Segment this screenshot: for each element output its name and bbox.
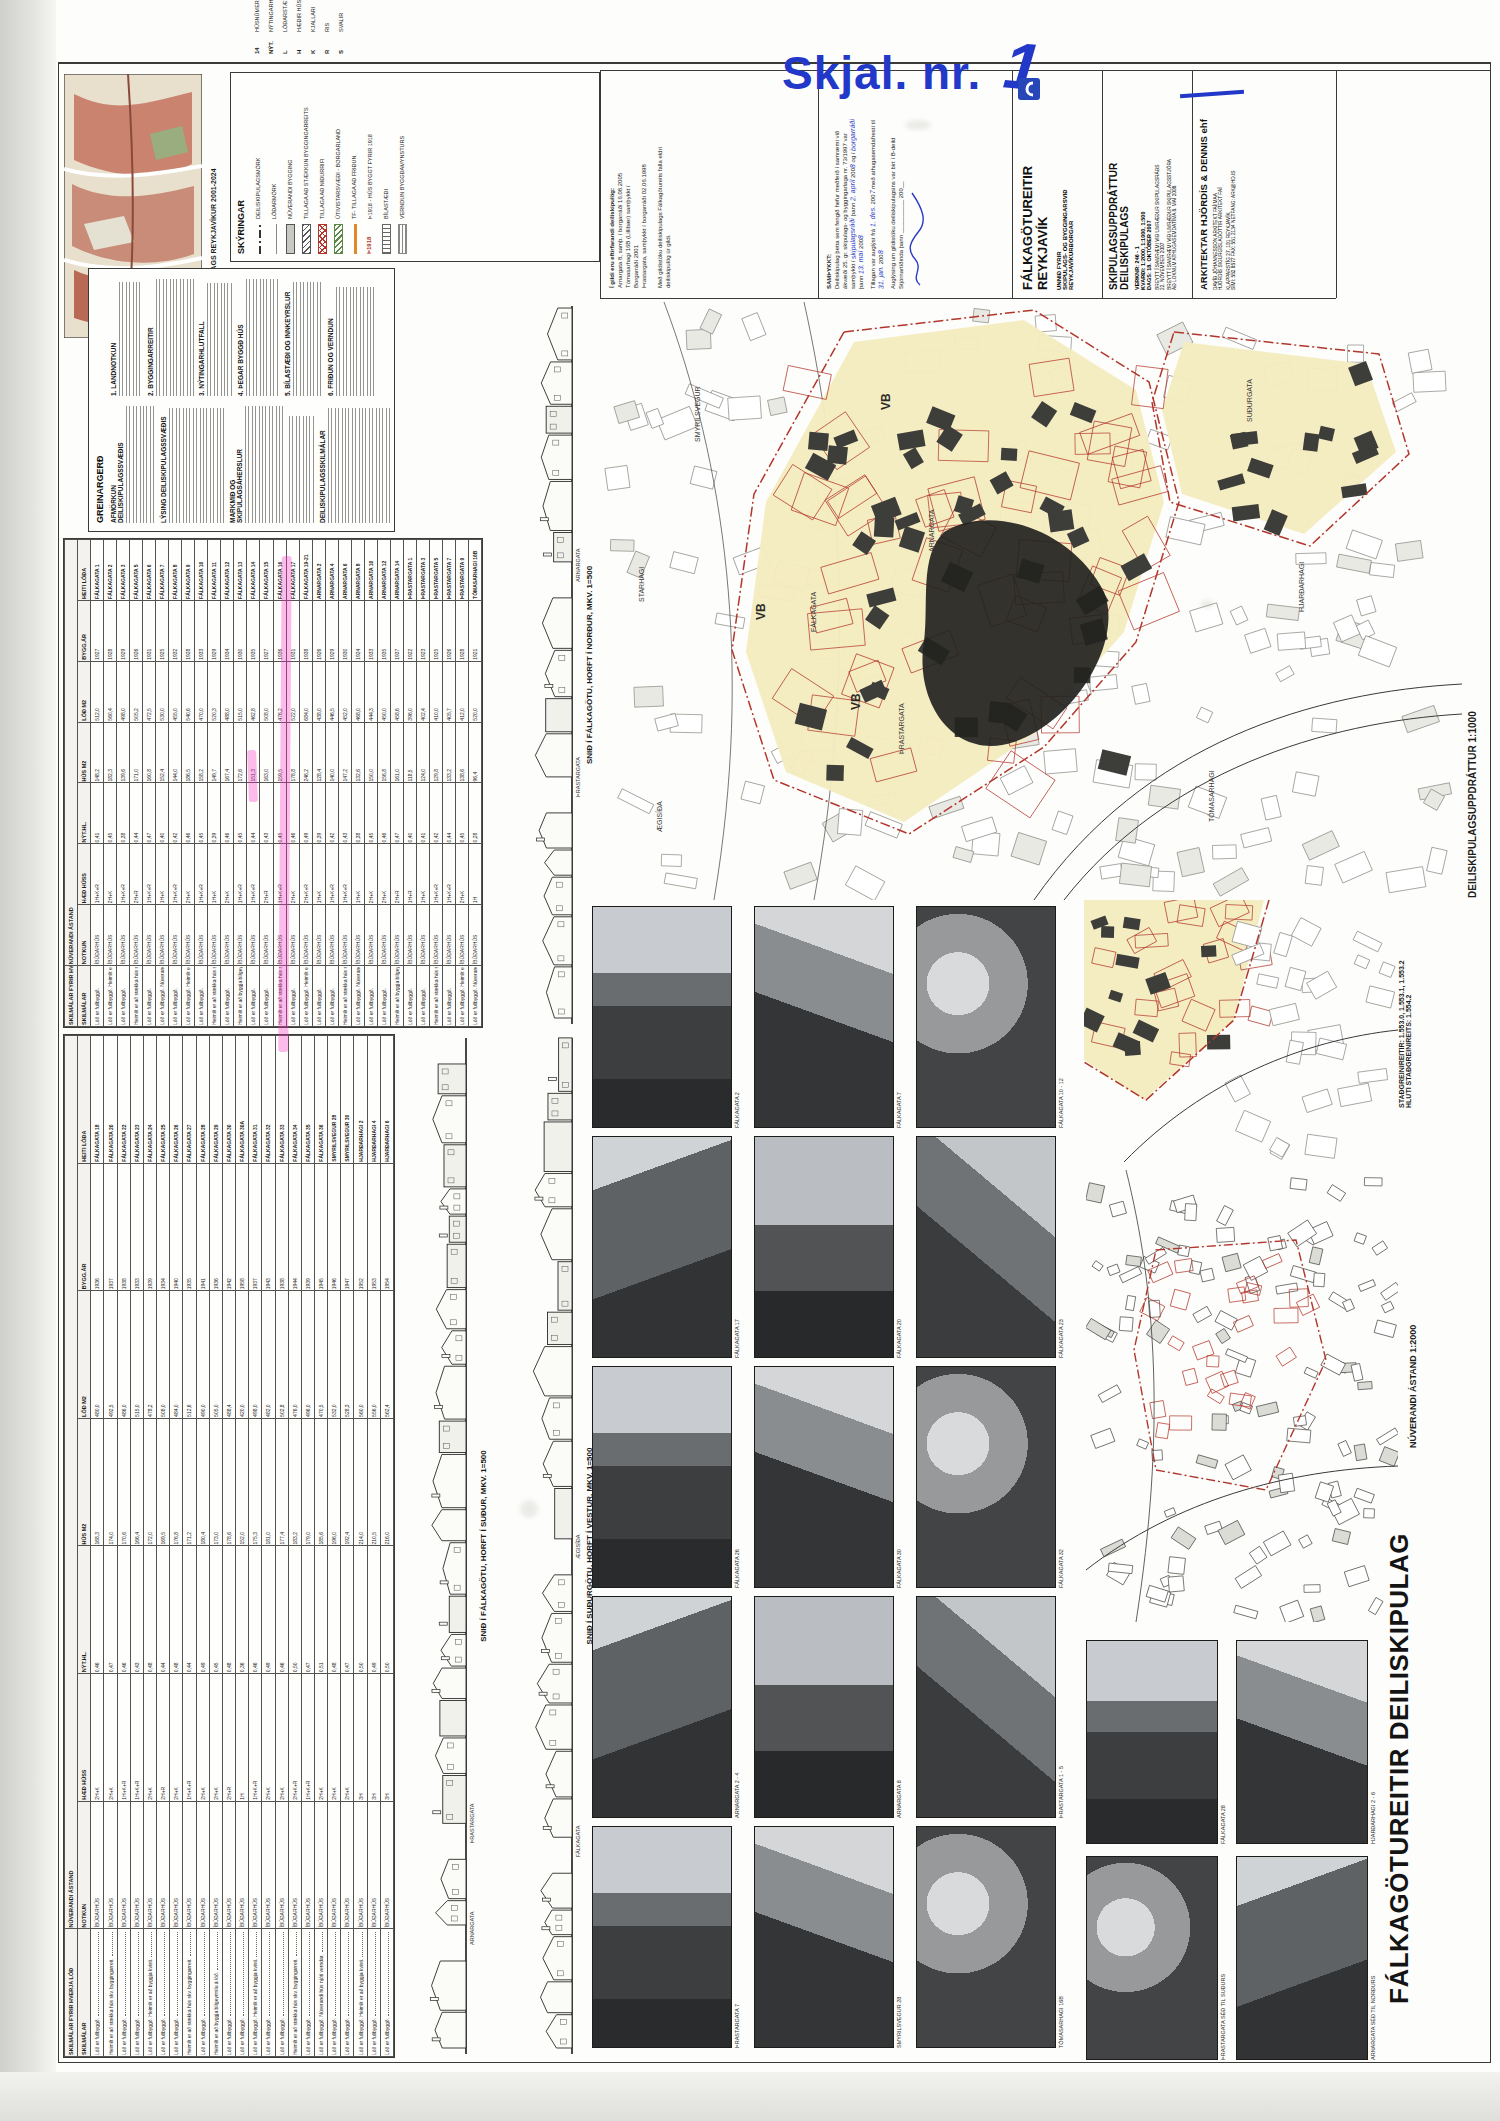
table-row: Lóð er fullbyggð. Heimilt er að byggja k… (354, 1036, 367, 2057)
cell-year: 1945 (314, 1163, 327, 1291)
cell-year: 1926 (442, 600, 455, 661)
cell-terms: Heimilt er að stækka hús skv. byggingarr… (183, 1929, 196, 2057)
legend-item-label: LÓÐARMÖRK (271, 184, 277, 219)
cell-ratio: 0,44 (157, 1546, 170, 1674)
cell-house-m2: 196,0 (328, 1418, 341, 1546)
table-column-header: SKILMÁLAR (78, 966, 91, 1027)
site-photo (1236, 1856, 1368, 2060)
legend-key-symbol: S (338, 32, 344, 54)
cell-terms: Lóð er fullbyggð. (117, 966, 130, 1027)
cell-ratio: 0,28 (468, 783, 481, 844)
cell-house-m2: 246,2 (299, 722, 312, 783)
cell-height: 2H+R (130, 844, 143, 905)
cell-use: ÍBÚÐARHÚS (442, 905, 455, 966)
cell-house-m2: 161,0 (390, 722, 403, 783)
cell-lot-m2: 450,0 (377, 661, 390, 722)
cell-use: ÍBÚÐARHÚS (390, 905, 403, 966)
cell-house-m2: 149,7 (208, 722, 221, 783)
table-row: Lóð er fullbyggð.ÍBÚÐARHÚS1H+K+R0,45158,… (195, 540, 208, 1027)
cell-terms: Lóð er fullbyggð. (367, 1929, 380, 2057)
table-column-header: SKILMÁLAR (78, 1929, 91, 2057)
cell-ratio: 0,44 (442, 783, 455, 844)
table-row: Heimilt er að stækka hús skv. byggingarr… (208, 540, 221, 1027)
photo-caption: FÁLKAGATA 2 (734, 906, 740, 1128)
cell-house-m2: 156,8 (377, 722, 390, 783)
legend-item-label: TILLAGA AÐ STÆKKUN BYGGINGARREITS (303, 107, 309, 219)
table-row: Lóð er fullbyggð.ÍBÚÐARHÚS1H+K+R0,43166,… (130, 1036, 143, 2057)
cell-house-m2: 175,3 (249, 1418, 262, 1546)
cell-terms: Lóð er fullbyggð. (143, 966, 156, 1027)
site-photo (592, 906, 732, 1128)
cell-lot-name: FÁLKAGATA 34 (288, 1036, 301, 1164)
cell-year: 1938 (275, 1163, 288, 1291)
cell-terms: Lóð er fullbyggð. (196, 1929, 209, 2057)
cell-ratio: 0,43 (130, 1546, 143, 1674)
table-group-existing: NÚVERANDI ÁSTAND (65, 1036, 78, 1929)
table-row: Lóð er fullbyggð.ÍBÚÐARHÚS1H+K0,41124,04… (416, 540, 429, 1027)
titlestrip-divider (1336, 70, 1337, 298)
validity-note: Með gildistöku deiliskipulags Fálkagötur… (656, 138, 672, 288)
cell-house-m2: 140,0 (325, 722, 338, 783)
cell-lot-m2: 532,0 (328, 1291, 341, 1419)
handwritten-year: 8 (857, 235, 865, 239)
cell-lot-name: SMYRILSVEGUR 28 (328, 1036, 341, 1164)
table-row: Lóð er fullbyggð. Heimilt er að byggja k… (143, 1036, 156, 2057)
cell-year: 1928 (455, 600, 468, 661)
cell-ratio: 0,49 (262, 1546, 275, 1674)
photo-caption: FÁLKAGATA 26 (734, 1366, 740, 1588)
cell-lot-name: HJARÐARHAGI 6 (380, 1036, 393, 1164)
cell-ratio: 0,50 (354, 1546, 367, 1674)
cell-terms: Lóð er fullbyggð. (260, 966, 273, 1027)
cell-terms: Lóð er fullbyggð. Heimilt er að byggja k… (299, 966, 312, 1027)
cell-use: ÍBÚÐARHÚS (468, 905, 481, 966)
cell-ratio: 0,49 (299, 783, 312, 844)
cell-lot-name: FÁLKAGATA 6 (143, 540, 156, 601)
legend-item: TILLAGA AÐ STÆKKUN BYGGINGARREITS (298, 54, 314, 254)
legend-key-item: SSVALIR (334, 0, 348, 54)
cell-height: 1H+K (208, 844, 221, 905)
cell-house-m2: 180,4 (196, 1418, 209, 1546)
table-column-header: HÆÐ HÚSS (78, 1674, 91, 1802)
cell-height: 2H+K (209, 1674, 222, 1802)
stadgrein-line: HLUTI STAÐGREINIREITS: 1.554.2 (1405, 900, 1412, 1108)
cell-use: ÍBÚÐARHÚS (196, 1801, 209, 1929)
cell-height: 2H+R (157, 1674, 170, 1802)
cell-lot-m2: 512,6 (183, 1291, 196, 1419)
table-row: Lóð er fullbyggð.ÍBÚÐARHÚS1H+K+R0,42140,… (325, 540, 338, 1027)
cell-lot-m2: 528,3 (341, 1291, 354, 1419)
cell-ratio: 0,46 (275, 1546, 288, 1674)
cell-year: 1929 (325, 600, 338, 661)
cell-lot-m2: 560,4 (104, 661, 117, 722)
cell-terms: Heimilt er að stækka hús skv. byggingarr… (288, 1929, 301, 2057)
cell-ratio: 0,44 (130, 783, 143, 844)
cell-lot-m2: 530,0 (156, 661, 169, 722)
cell-house-m2: 210,5 (367, 1418, 380, 1546)
section-drawing: FÁLKAGATAÆGISÍÐASNIÐ Í SUÐURGÖTU, HORFT … (500, 1034, 598, 2058)
cell-terms: Lóð er fullbyggð. (377, 966, 390, 1027)
cell-ratio: 0,43 (338, 783, 351, 844)
cell-year: 1934 (221, 600, 234, 661)
cell-ratio: 0,46 (249, 1546, 262, 1674)
cell-use: ÍBÚÐARHÚS (130, 1801, 143, 1929)
cell-ratio: 0,46 (221, 783, 234, 844)
cell-terms: Lóð er fullbyggð. (221, 966, 234, 1027)
legend-item-label: NÚVERANDI BYGGING (287, 159, 293, 219)
cell-terms: Lóð er fullbyggð. Heimilt er að byggja k… (182, 966, 195, 1027)
handwritten-year: 8 (877, 250, 885, 254)
cell-terms: Lóð er fullbyggð. Núverandi hús njóti ve… (314, 1929, 327, 2057)
legend-item-label: TILLAGA AÐ NIÐURRIFI (319, 158, 325, 219)
cell-height: 2H+K (182, 844, 195, 905)
cell-height: 1H+K+R (234, 844, 247, 905)
cell-lot-m2: 410,0 (429, 661, 442, 722)
cell-lot-m2: 444,3 (364, 661, 377, 722)
cell-ratio: 0,39 (208, 783, 221, 844)
legend-key-label: RIS (324, 23, 330, 32)
table-column-header: LÓÐ M2 (78, 1291, 91, 1419)
approval-text: með athugasemdafresti til (870, 120, 876, 189)
handwritten-year: 8 (849, 164, 857, 168)
cell-ratio: 0,46 (377, 783, 390, 844)
crosshatch-swatch-icon (318, 224, 327, 254)
report-box: GREINARGERÐ AFMÖRKUN DEILISKIPULAGSSVÆÐI… (88, 268, 395, 532)
cell-use: ÍBÚÐARHÚS (351, 905, 364, 966)
table-row: Lóð er fullbyggð.ÍBÚÐARHÚS2H+K0,48176,84… (170, 1036, 183, 2057)
svg-text:ARNARGATA: ARNARGATA (469, 1911, 475, 1945)
cell-lot-m2: 508,0 (260, 661, 273, 722)
approval-text: 200__ (898, 182, 904, 199)
cell-lot-name: FÁLKAGATA 24 (143, 1036, 156, 1164)
cell-year: 1928 (182, 600, 195, 661)
cell-use: ÍBÚÐARHÚS (117, 1801, 130, 1929)
legend-key-item: RRIS (320, 0, 334, 54)
approval-text: og í (850, 152, 856, 162)
cell-ratio: 0,46 (182, 783, 195, 844)
photo-caption: FÁLKAGATA 20 (896, 1136, 902, 1358)
table-column-header: NOTKUN (78, 1801, 91, 1929)
handwritten-date: 2. apríl (849, 180, 858, 202)
sheet-date: DAGS: 18. OKTÓBER 2007 (1146, 78, 1152, 290)
table-row: Lóð er fullbyggð. Heimilt er að byggja k… (104, 540, 117, 1027)
table-row: Lóð er fullbyggð. Heimilt er að byggja k… (249, 1036, 262, 2057)
architects-line: HJÖRDÍS SIGURGÍSLADÓTTIR ARKITEKT FAÍ (1218, 78, 1223, 290)
cell-house-m2: 133,2 (442, 722, 455, 783)
cell-use: ÍBÚÐARHÚS (91, 1801, 104, 1929)
site-photo (1236, 1640, 1368, 1844)
cell-lot-name: TÓMASARHAGI 16B (468, 540, 481, 601)
table-row: Heimilt er að stækka hús skv. byggingarr… (429, 540, 442, 1027)
cell-year: 1929 (117, 600, 130, 661)
approval-text: 200 (858, 239, 864, 249)
cell-house-m2: 171,0 (130, 722, 143, 783)
cell-lot-name: ÞRASTARGATA 3 (416, 540, 429, 601)
cell-lot-m2: 420,0 (236, 1291, 249, 1419)
report-paragraph-lines (156, 279, 194, 396)
cell-ratio: 0,45 (455, 783, 468, 844)
cell-ratio: 0,47 (341, 1546, 354, 1674)
section-elevation-west: FÁLKAGATAÆGISÍÐASNIÐ Í SUÐURGÖTU, HORFT … (500, 1034, 598, 2058)
cell-use: ÍBÚÐARHÚS (288, 1801, 301, 1929)
cell-height: 1H+R (403, 844, 416, 905)
site-photo (754, 1596, 894, 1818)
approval-text: þann (858, 276, 864, 289)
main-plan-map: VBVBVBFÁLKAGATAARNARGATAÞRASTARGATASMYRI… (604, 302, 1462, 900)
cell-lot-m2: 684,0 (299, 661, 312, 722)
cell-terms: Lóð er fullbyggð. Heimilt er að byggja k… (143, 1929, 156, 2057)
cell-lot-name: ARNARGATA 4 (325, 540, 338, 601)
stadgreinireitir-label: STAÐGREINIREITIR: 1.553.0, 1.553.1, 1.55… (1398, 900, 1434, 1108)
site-photo (1086, 1856, 1218, 2060)
cell-height: 1H+K+R (117, 1674, 130, 1802)
legend-item: Þ1918Þ1918 - HÚS BYGGT FYRIR 1918 (362, 54, 378, 254)
cell-use: ÍBÚÐARHÚS (209, 1801, 222, 1929)
cell-house-m2: 216,0 (380, 1418, 393, 1546)
cell-lot-name: ARNARGATA 14 (390, 540, 403, 601)
cell-house-m2: 144,0 (169, 722, 182, 783)
site-photo (754, 1826, 894, 2048)
cell-lot-m2: 405,7 (442, 661, 455, 722)
report-heading: 6. FRIÐUN OG VERNDUN (327, 277, 334, 396)
cell-use: ÍBÚÐARHÚS (367, 1801, 380, 1929)
table-group-existing: NÚVERANDI ÁSTAND (65, 540, 78, 966)
photo-caption: TÓMASARHAGI 16B (1058, 1826, 1064, 2048)
photo-grid-right: FÁLKAGATA 28HJARÐARHAGI 2 - 6ÞRASTARGATA… (1086, 1640, 1382, 2060)
photo-caption: ÞRASTARGATA SÉÐ TIL SUÐURS (1220, 1856, 1226, 2060)
cell-year: 1938 (117, 1163, 130, 1291)
vb-zone-label: VB (849, 693, 863, 710)
cell-year: 1930 (338, 600, 351, 661)
cell-height: 1H+K+R (117, 844, 130, 905)
photo-caption: FÁLKAGATA 17 (734, 1136, 740, 1358)
cell-lot-name: FÁLKAGATA 14 (247, 540, 260, 601)
cell-house-m2: 172,0 (143, 1418, 156, 1546)
cell-lot-name: FÁLKAGATA 35 (301, 1036, 314, 1164)
cell-use: ÍBÚÐARHÚS (195, 905, 208, 966)
signature-squiggle (908, 179, 926, 289)
cell-house-m2: 169,5 (157, 1418, 170, 1546)
grayfill-swatch-icon (286, 224, 295, 254)
legend-item: ÚTIVISTARSVÆÐI - BORGARLAND (330, 54, 346, 254)
report-heading: 4. ÞEGAR BYGGÐ HÚS (237, 277, 244, 396)
street-name-label: STARHAGI (638, 567, 645, 602)
cell-year: 1944 (288, 1163, 301, 1291)
street-name-label: SUÐURGATA (1246, 379, 1253, 422)
hatch-swatch-icon (302, 224, 311, 254)
table-row: Lóð er fullbyggð.ÍBÚÐARHÚS2H+K0,46177,45… (275, 1036, 288, 2057)
report-paragraph-lines (246, 279, 280, 396)
cell-lot-name: FÁLKAGATA 33 (275, 1036, 288, 1164)
table-column-header: BYGG.ÁR (78, 1163, 91, 1291)
architects-name: ARKITEKTAR HJÖRDÍS & DENNIS ehf (1198, 78, 1209, 290)
photo-caption: FÁLKAGATA 28 (1220, 1640, 1226, 1844)
scanned-plan-sheet: Skjal. nr. 1 Í gildi eru eftirfarandi de… (0, 0, 1500, 2121)
sheet-main-title-text: FÁLKAGÖTUREITIR DEILISKIPULAG (1384, 1533, 1414, 2004)
cell-lot-m2: 484,0 (170, 1291, 183, 1419)
cell-year: 1937 (249, 1163, 262, 1291)
cell-terms: Lóð er fullbyggð. (301, 1929, 314, 2057)
cell-height: 2H+K (377, 844, 390, 905)
legend-heading: SKÝRINGAR (236, 54, 246, 254)
street-name-label: HJARÐARHAGI (1298, 562, 1305, 612)
legend-item-label: BÍLASTÆÐI (383, 189, 389, 219)
cell-height: 1H+K+R (91, 844, 104, 905)
site-photo (916, 1826, 1056, 2048)
cell-lot-m2: 502,8 (275, 1291, 288, 1419)
photo-caption: FÁLKAGATA 23 (1058, 1136, 1064, 1358)
existing-state-label-text: NÚVERANDI ÁSTAND 1:2000 (1408, 1325, 1418, 1448)
cell-ratio: 0,40 (156, 783, 169, 844)
photo-caption: FÁLKAGATA 7 (896, 906, 902, 1128)
report-heading: 2. BYGGINGARREITIR (147, 277, 154, 396)
legend-key-label: NÝTINGARHLUTFALL (268, 0, 274, 32)
cell-lot-name: ÞRASTARGATA 5 (429, 540, 442, 601)
cell-terms: Lóð er fullbyggð. (91, 966, 104, 1027)
cell-year: 1923 (416, 600, 429, 661)
cell-year: 1934 (157, 1163, 170, 1291)
cell-house-m2: 160,8 (143, 722, 156, 783)
cell-lot-name: FÁLKAGATA 13 (234, 540, 247, 601)
stadgrein-line: STAÐGREINIREITIR: 1.553.0, 1.553.1, 1.55… (1398, 900, 1405, 1108)
table-row: Lóð er fullbyggð.ÍBÚÐARHÚS1H+K+R0,44133,… (442, 540, 455, 1027)
approval-box: SAMÞYKKT: Deiliskipulag þetta sem fengið… (820, 72, 1010, 296)
table-column-header: NÝT.HL. (78, 783, 91, 844)
cell-height: 3H (354, 1674, 367, 1802)
firm-logo (1018, 78, 1040, 100)
cell-height: 2H+R (390, 844, 403, 905)
photo-caption: FÁLKAGATA 32 (1058, 1366, 1064, 1588)
cell-house-m2: 171,2 (183, 1418, 196, 1546)
cell-year: 1939 (143, 1163, 156, 1291)
cell-use: ÍBÚÐARHÚS (364, 905, 377, 966)
site-photo (1086, 1640, 1218, 1844)
cell-height: 1H+K+R (195, 844, 208, 905)
cell-lot-m2: 470,0 (195, 661, 208, 722)
cell-house-m2: 174,0 (104, 1418, 117, 1546)
cell-year: 1937 (390, 600, 403, 661)
cell-height: 2H+K (328, 1674, 341, 1802)
cell-lot-m2: 455,0 (169, 661, 182, 722)
cell-height: 1H+K+R (143, 844, 156, 905)
site-photo (916, 906, 1056, 1128)
table-row: Lóð er fullbyggð.ÍBÚÐARHÚS1H+R0,40118,53… (403, 540, 416, 1027)
cell-lot-m2: 468,0 (351, 661, 364, 722)
section-elevation-north: ÞRASTARGATAARNARGATASNIÐ Í FÁLKAGÖTU, HO… (492, 302, 598, 1028)
orange-swatch-icon (354, 224, 357, 254)
cell-lot-name: FÁLKAGATA 22 (117, 1036, 130, 1164)
cell-terms: Heimilt er að byggja bílgeymslu á lóð. (390, 966, 403, 1027)
svg-text:FÁLKAGATA: FÁLKAGATA (575, 1825, 581, 1857)
cell-height: 1H+K+R (169, 844, 182, 905)
cell-ratio: 0,42 (429, 783, 442, 844)
cell-lot-name: FÁLKAGATA 8 (169, 540, 182, 601)
site-photo (592, 1136, 732, 1358)
dashdot-swatch-icon (259, 224, 261, 254)
cell-house-m2: 185,6 (314, 1418, 327, 1546)
cell-use: ÍBÚÐARHÚS (262, 1801, 275, 1929)
cell-ratio: 0,47 (301, 1546, 314, 1674)
cell-lot-m2: 492,5 (104, 1291, 117, 1419)
cell-ratio: 0,48 (170, 1546, 183, 1674)
cell-height: 2H+K (170, 1674, 183, 1802)
report-heading: AFMÖRKUN DEILISKIPULAGSSVÆÐIS (110, 404, 124, 523)
approval-text: 200 (870, 194, 876, 204)
photo-caption: ARNARGATA 8 (896, 1596, 902, 1818)
approval-heading: SAMÞYKKT: (825, 79, 833, 289)
cell-terms: Lóð er fullbyggð. (157, 1929, 170, 2057)
cell-lot-name: FÁLKAGATA 2 (104, 540, 117, 601)
cell-terms: Lóð er fullbyggð. (341, 1929, 354, 2057)
cell-house-m2: 163,0 (260, 722, 273, 783)
cell-height: 2H+K (314, 1674, 327, 1802)
validity-line: Í gildi eru eftirfarandi deiliskipulög: (608, 80, 616, 288)
cell-terms: Lóð er fullbyggð. Núverandi hús njóti ve… (156, 966, 169, 1027)
cell-use: ÍBÚÐARHÚS (299, 905, 312, 966)
line-swatch-icon (276, 224, 277, 254)
cell-year: 1933 (364, 600, 377, 661)
cell-use: ÍBÚÐARHÚS (117, 905, 130, 966)
table-row: Heimilt er að stækka hús skv. byggingarr… (104, 1036, 117, 2057)
report-paragraph-lines (328, 408, 392, 523)
cell-lot-name: FÁLKAGATA 29 (209, 1036, 222, 1164)
photo-grid-left: FÁLKAGATA 2FÁLKAGATA 7FÁLKAGATA 10 - 12F… (592, 906, 1074, 2058)
table-row: Lóð er fullbyggð.ÍBÚÐARHÚS2H+K0,49180,44… (196, 1036, 209, 2057)
cell-use: ÍBÚÐARHÚS (222, 1801, 235, 1929)
cell-lot-m2: 520,3 (208, 661, 221, 722)
site-photo (754, 1136, 894, 1358)
cell-ratio: 0,49 (196, 1546, 209, 1674)
cell-ratio: 0,46 (117, 1546, 130, 1674)
cell-terms: Lóð er fullbyggð. Heimilt er að byggja k… (354, 1929, 367, 2057)
cell-height: 1H+K+R (249, 1674, 262, 1802)
cell-terms: Lóð er fullbyggð. (416, 966, 429, 1027)
validity-line: Arnargata 8, samþ. í borgarráði 16.08.20… (616, 80, 624, 288)
legend-item: NÚVERANDI BYGGING (282, 54, 298, 254)
sheet-rev: AÐ LOKNUM ATHUGASEMDATÍMA 8. MAÍ 2008 (1172, 78, 1177, 290)
table-row: Lóð er fullbyggð.ÍBÚÐARHÚS1H+K+R0,47160,… (143, 540, 156, 1027)
legend-item-label: ÚTIVISTARSVÆÐI - BORGARLAND (335, 129, 341, 219)
cell-lot-name: ARNARGATA 8 (351, 540, 364, 601)
cell-ratio: 0,45 (364, 783, 377, 844)
cell-lot-m2: 512,0 (91, 661, 104, 722)
cell-ratio: 0,42 (325, 783, 338, 844)
legend-key-item: 14HÚSNÚMER (250, 0, 264, 54)
cell-lot-m2: 472,5 (143, 661, 156, 722)
cell-lot-name: ÞRASTARGATA 1 (403, 540, 416, 601)
handwritten-date: 13. maí (857, 250, 866, 274)
cell-year: 1942 (222, 1163, 235, 1291)
cell-use: ÍBÚÐARHÚS (354, 1801, 367, 1929)
table-row: Lóð er fullbyggð.ÍBÚÐARHÚS1H+K0,39128,44… (312, 540, 325, 1027)
cell-height: 1H+K+R (429, 844, 442, 905)
cell-house-m2: 173,0 (209, 1418, 222, 1546)
cell-height: 1H+K+R (301, 1674, 314, 1802)
legend-key-item: HHÆÐIR HÚSA (FJÖLDI) (292, 0, 306, 54)
cell-use: ÍBÚÐARHÚS (341, 1801, 354, 1929)
frame-left (58, 62, 59, 2063)
approval-blank: __________ (898, 200, 904, 233)
lot-table-upper: SKILMÁLAR FYRIR HVERJA LÓÐNÚVERANDI ÁSTA… (63, 538, 483, 1028)
street-name-label: TÓMASARHAGI (1207, 770, 1215, 822)
table-row: Lóð er fullbyggð. Núverandi hús njóti ve… (468, 540, 481, 1027)
cell-ratio: 0,50 (288, 1546, 301, 1674)
site-photo (916, 1136, 1056, 1358)
sheet-title2: DEILISKIPULAGS (1119, 78, 1130, 290)
legend-key-item: NÝT.NÝTINGARHLUTFALL (264, 0, 278, 54)
cell-ratio: 0,48 (328, 1546, 341, 1674)
cell-ratio: 0,40 (403, 783, 416, 844)
